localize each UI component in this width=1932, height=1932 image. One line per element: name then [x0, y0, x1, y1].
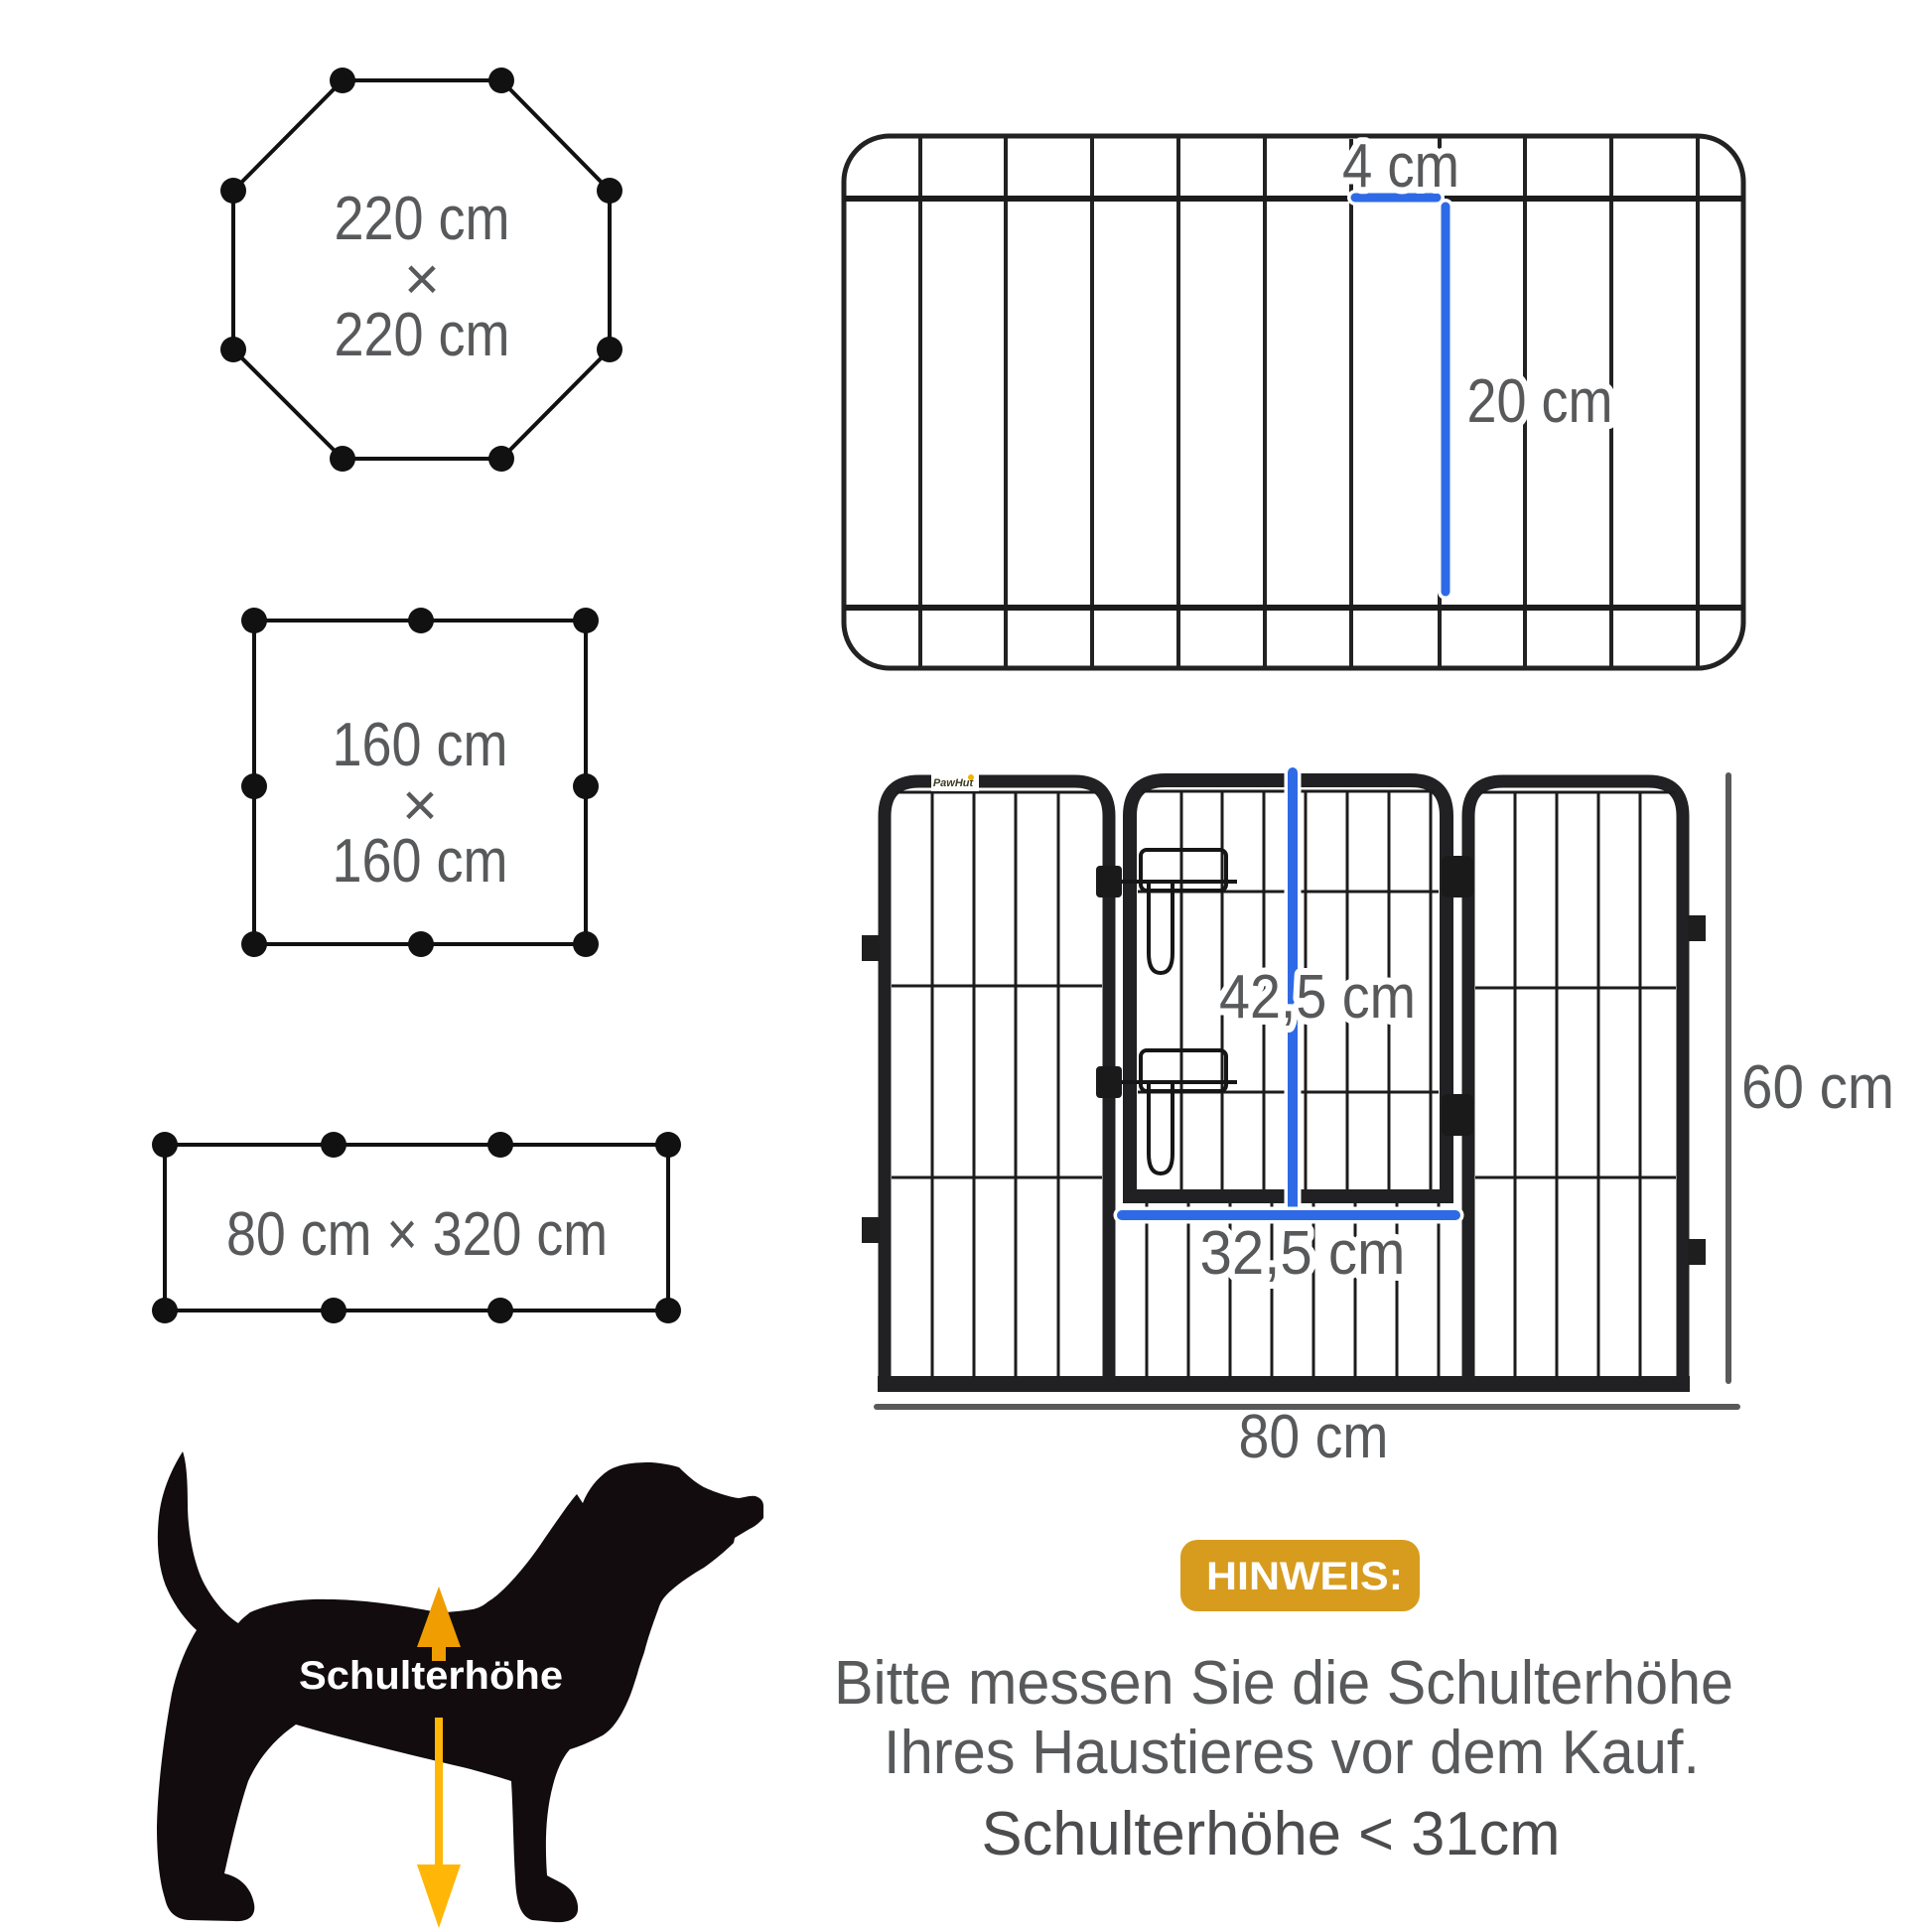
svg-text:220 cm: 220 cm [335, 185, 510, 253]
svg-text:42,5 cm: 42,5 cm [1219, 963, 1416, 1032]
svg-text:Schulterhöhe: Schulterhöhe [299, 1654, 563, 1698]
svg-text:32,5 cm: 32,5 cm [1200, 1219, 1406, 1288]
svg-text:20 cm: 20 cm [1467, 367, 1613, 436]
svg-text:220 cm: 220 cm [335, 301, 510, 369]
svg-text:Bitte messen Sie die Schulterh: Bitte messen Sie die Schulterhöhe [834, 1649, 1733, 1718]
svg-text:60 cm: 60 cm [1741, 1053, 1894, 1122]
svg-text:PawHut: PawHut [933, 777, 975, 789]
svg-text:4 cm: 4 cm [1342, 132, 1459, 201]
svg-text:80 cm × 320 cm: 80 cm × 320 cm [226, 1200, 608, 1269]
svg-text:Ihres Haustieres vor dem Kauf.: Ihres Haustieres vor dem Kauf. [884, 1719, 1700, 1787]
svg-text:160 cm: 160 cm [333, 711, 508, 779]
svg-text:Schulterhöhe < 31cm: Schulterhöhe < 31cm [982, 1800, 1561, 1868]
svg-text:80 cm: 80 cm [1239, 1403, 1389, 1471]
svg-text:HINWEIS:: HINWEIS: [1206, 1555, 1403, 1598]
svg-text:160 cm: 160 cm [333, 827, 508, 896]
